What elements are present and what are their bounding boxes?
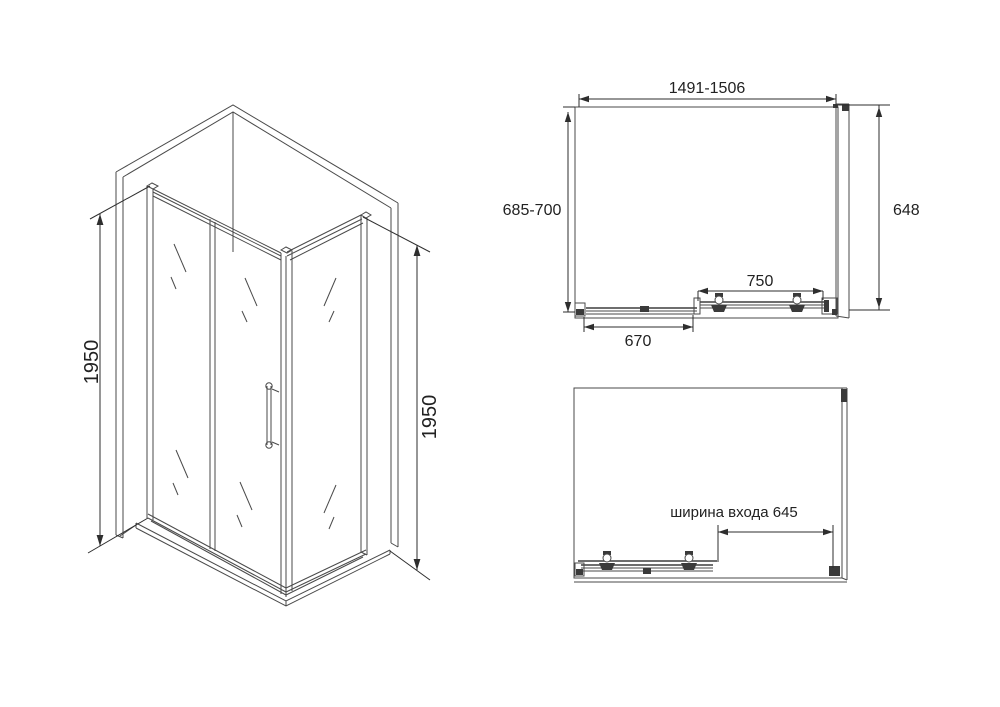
depth-label: 685-700	[503, 202, 562, 219]
fixed-panel-track	[575, 303, 697, 316]
plan-open-outline	[574, 388, 842, 578]
dimension-width: 1491-1506	[579, 80, 836, 107]
plan-closed-outline	[575, 107, 838, 318]
dimension-fixed-panel: 670	[584, 315, 693, 350]
width-label: 1491-1506	[669, 80, 746, 97]
door-width-label: 750	[747, 273, 774, 290]
right-wall-profile	[833, 104, 849, 318]
plan-view-open: ширина входа 645	[574, 388, 847, 582]
dimension-depth: 685-700	[503, 107, 575, 312]
fixed-panel-label: 670	[625, 333, 652, 350]
plan-view-closed: 1491-1506 685-700 648 750	[503, 80, 920, 350]
door-handle	[266, 383, 279, 448]
wall-profile-cap	[841, 389, 847, 402]
dimension-height-right: 1950	[363, 217, 441, 580]
sliding-door-closed	[694, 293, 837, 315]
enclosure-frame	[147, 183, 371, 597]
entrance-width-label: ширина входа 645	[670, 504, 798, 521]
isometric-view: 1950 1950	[81, 105, 441, 606]
room-walls	[116, 105, 398, 547]
dimension-side-panel: 648	[838, 105, 920, 310]
dimension-entrance: ширина входа 645	[670, 504, 833, 568]
glass-reflection-marks	[171, 244, 336, 529]
technical-drawing: 1950 1950	[0, 0, 1000, 707]
shower-tray	[120, 523, 390, 606]
height-right-label: 1950	[419, 395, 441, 440]
height-left-label: 1950	[81, 340, 103, 385]
sliding-door-open	[575, 551, 840, 576]
side-panel-label: 648	[893, 202, 920, 219]
